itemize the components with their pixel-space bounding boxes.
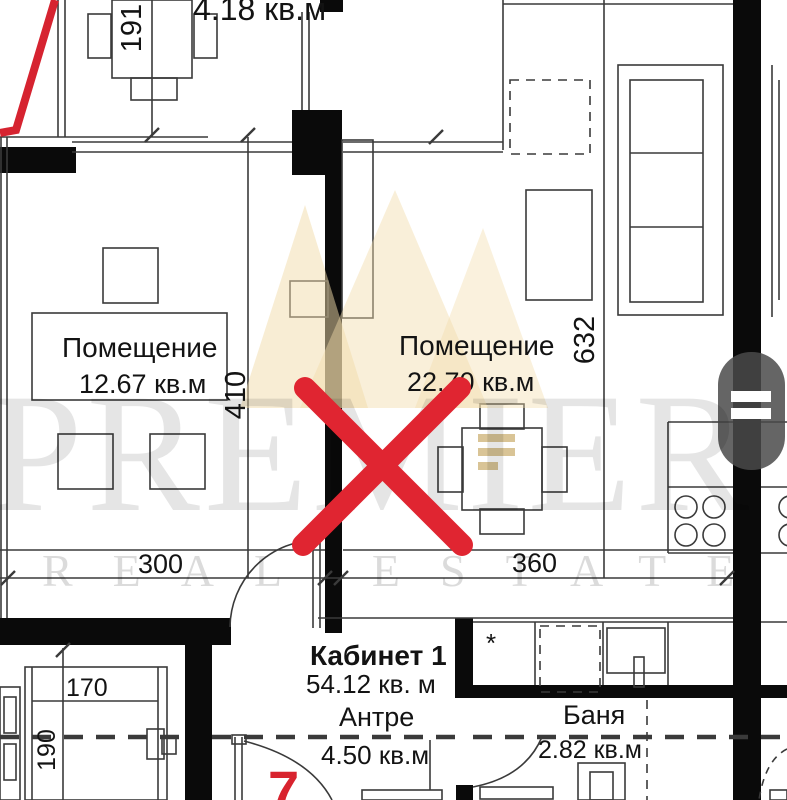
hallway-area: 4.50 кв.м [321,740,429,771]
room-left-area: 12.67 кв.м [79,369,206,400]
kitchen-sink [607,628,665,673]
room-right-area: 22.70 кв.м [407,367,534,398]
wardrobe-dashed [510,80,590,154]
dining-table-and-chairs [438,404,567,534]
appliance-dashed [540,626,600,692]
room-right-width-dim: 360 [512,548,557,579]
terrace-width-dim: 191 [104,0,160,56]
coffee-table [526,190,592,300]
bedroom-height-dim: 190 [19,722,75,778]
bathroom-area: 2.82 кв.м [538,736,642,765]
room-left-height-dim: 410 [208,367,264,423]
bedroom-width-dim: 170 [66,674,108,703]
unit-area: 54.12 кв. м [306,669,436,700]
terrace-area-label: 4.18 кв.м [193,0,326,28]
kitchen-note-asterisk: * [486,628,496,659]
bathroom-name: Баня [563,700,625,731]
toilet [578,763,625,800]
room-left-width-dim: 300 [138,549,183,580]
door-arc-bathroom [473,737,542,787]
door-left-room [230,540,320,628]
drag-handle-overlay [718,352,785,470]
room-right-name: Помещение [399,330,555,362]
sofa [618,65,723,315]
room-right-height-dim: 632 [557,312,613,368]
crown-emblem [478,434,515,470]
floor-plan: PREMIER REAL ESTATE 4.18 кв.м 191 Помеще… [0,0,787,800]
hallway-name: Антре [339,702,414,733]
stove-burners [675,496,725,546]
kitchen-row [473,622,733,692]
unit-name: Кабинет 1 [310,640,447,672]
unit-number: 7 [268,758,299,800]
room-left-name: Помещение [62,332,218,364]
